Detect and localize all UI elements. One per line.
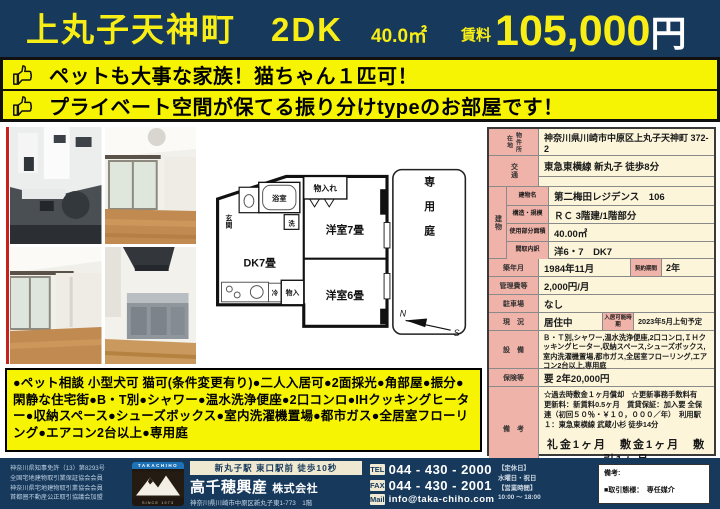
compass-north-label: N: [400, 309, 407, 319]
movein-value: 2023年5月上旬予定: [634, 313, 714, 330]
transaction-remark-box: 備考: ■取引態様： 専任媒介: [598, 464, 710, 504]
contact-row-tel: TEL 044 - 430 - 2000: [370, 462, 492, 477]
room7-label: 洋室7畳: [326, 223, 365, 236]
location-value: 神奈川県川崎市中原区上丸子天神町 372-2: [539, 129, 714, 155]
photo-grid: [10, 127, 196, 364]
red-accent-strip: [6, 127, 9, 364]
row-insurance: 保険等 要 2年20,000円: [489, 369, 714, 387]
catchcopy-line-2: プライベート空間が保てる振り分けtypeのお部屋です！: [49, 91, 564, 120]
built-label: 築年月: [489, 259, 539, 276]
compass-south-label: S: [454, 328, 460, 338]
open-value: 10:00 ～ 18:00: [498, 493, 560, 503]
row-building-name: 建物名 第二梅田レジデンス 106: [507, 187, 714, 205]
mountain-icon: [132, 469, 184, 500]
footer: 神奈川県知事免許（13）第8293号 全国宅地建物取引業保証協会会員 神奈川県宅…: [0, 458, 720, 509]
remark-box-label: 備考:: [604, 468, 704, 478]
building-label: 建物: [489, 187, 507, 258]
fax-label: FAX: [370, 480, 385, 491]
washer-label: 洗: [288, 218, 295, 227]
transaction-type: ■取引態様： 専任媒介: [604, 485, 704, 495]
insurance-label: 保険等: [489, 369, 539, 386]
photo-kitchen: [105, 247, 197, 364]
header: 上丸子天神町 2DK 40.0㎡ 賃料 105,000 円: [0, 0, 720, 57]
bath-label: 浴室: [272, 194, 287, 203]
status-value: 居住中: [539, 313, 602, 330]
garden-label: 専用庭: [423, 175, 435, 249]
structure-value: ＲＣ 3階建/1階部分: [549, 206, 714, 223]
floor-area-value: 40.0㎡: [371, 21, 427, 51]
contact-row-fax: FAX 044 - 430 - 2001: [370, 478, 492, 493]
access-empty-line: [539, 176, 714, 186]
access-value: 東急東横線 新丸子 徒歩8分: [539, 156, 714, 176]
row-mgmt: 管理費等 2,000円/月: [489, 277, 714, 295]
rent-label: 賃料: [461, 24, 491, 51]
closed-value: 水曜日・祝日: [498, 474, 560, 484]
thumbs-up-icon: [11, 63, 33, 87]
mgmt-value: 2,000円/月: [539, 277, 714, 294]
main-area: 専用庭 N S 物入れ: [0, 122, 720, 458]
floor-area-value: 40.00㎡: [549, 224, 714, 241]
logo-bottom-text: SINCE 1973: [132, 500, 184, 506]
photo-building-exterior: [10, 127, 102, 244]
contract-label: 契約期間: [630, 259, 662, 276]
equipment-value: Ｂ・Ｔ別,シャワー,温水洗浄便座,2口コンロ,ＩＨクッキングヒーター,収納スペー…: [539, 331, 714, 368]
built-value: 1984年11月: [539, 259, 630, 276]
dk-label: DK7畳: [244, 258, 277, 270]
room6-label: 洋室6畳: [326, 289, 365, 302]
fax-value: 044 - 430 - 2001: [389, 478, 492, 493]
floor-plan: 専用庭 N S 物入れ: [198, 125, 482, 367]
company-name: 高千穂興産 株式会社: [190, 476, 362, 497]
company-block: 新丸子駅 東口駅前 徒歩10秒 高千穂興産 株式会社 神奈川県川崎市中原区新丸子…: [190, 461, 362, 507]
row-building: 建物 建物名 第二梅田レジデンス 106 構造・規模 ＲＣ 3階建/1階部分 使…: [489, 187, 714, 259]
row-status: 現 況 居住中 入居可能時期 2023年5月上旬予定: [489, 313, 714, 331]
property-flyer: 上丸子天神町 2DK 40.0㎡ 賃料 105,000 円 ペットも大事な家族！…: [0, 0, 720, 509]
property-table: 物件所在地 神奈川県川崎市中原区上丸子天神町 372-2 交通 東急東横線 新丸…: [487, 127, 716, 456]
row-location: 物件所在地 神奈川県川崎市中原区上丸子天神町 372-2: [489, 129, 714, 156]
row-parking: 駐車場 なし: [489, 295, 714, 313]
catchcopy-row: プライベート空間が保てる振り分けtypeのお部屋です！: [3, 89, 717, 120]
catchcopy-row: ペットも大事な家族！猫ちゃん１匹可！: [3, 60, 717, 89]
remarks-line-2: 更新料：新賃料0.5ヶ月 賃貸保証：加入要 全保連（初回５０％・￥１０，０００／…: [544, 400, 709, 430]
open-label: 【営業時間】: [498, 484, 560, 494]
tel-value: 044 - 430 - 2000: [389, 462, 492, 477]
license-line: 神奈川県宅地建物取引業協会会員: [10, 484, 130, 494]
station-access: 新丸子駅 東口駅前 徒歩10秒: [190, 461, 362, 475]
closed-label: 【定休日】: [498, 464, 560, 474]
parking-value: なし: [539, 295, 714, 312]
company-suffix: 株式会社: [272, 483, 318, 495]
license-list: 神奈川県知事免許（13）第8293号 全国宅地建物取引業保証協会会員 神奈川県宅…: [6, 464, 130, 502]
contract-value: 2年: [662, 259, 714, 276]
insurance-value: 要 2年20,000円: [539, 369, 714, 386]
row-structure: 構造・規模 ＲＣ 3階建/1階部分: [507, 205, 714, 223]
mgmt-label: 管理費等: [489, 277, 539, 294]
thumbs-up-icon: [11, 94, 33, 118]
closet-top-label: 物入れ: [314, 183, 338, 193]
company-address: 神奈川県川崎市中原区新丸子東1-773 1階: [190, 498, 362, 507]
rent-unit: 円: [650, 17, 686, 51]
row-built: 築年月 1984年11月 契約期間 2年: [489, 259, 714, 277]
tel-label: TEL: [370, 464, 385, 475]
fridge-label: 冷: [272, 288, 279, 297]
parking-label: 駐車場: [489, 295, 539, 312]
building-name-label: 建物名: [507, 187, 549, 205]
access-label: 交通: [489, 156, 539, 186]
rent-value: 105,000: [495, 12, 650, 51]
license-line: 神奈川県知事免許（13）第8293号: [10, 464, 130, 474]
equipment-label: 設 備: [489, 331, 539, 368]
features-box: ●ペット相談 小型犬可 猫可(条件変更有り)●二人入居可●2面採光●角部屋●振分…: [5, 368, 482, 452]
remarks-line-1: ☆過去時敷金１ヶ月償却 ☆更新事務手数料有: [544, 390, 709, 400]
mail-value: info@taka-chiho.com: [389, 494, 495, 505]
movein-label: 入居可能時期: [602, 313, 634, 330]
business-hours: 【定休日】 水曜日・祝日 【営業時間】 10:00 ～ 18:00: [498, 464, 560, 502]
takachiho-logo: TAKACHIHO SINCE 1973: [132, 462, 184, 506]
mail-label: Mail: [370, 494, 385, 505]
floor-area-label: 使用部分面積: [507, 224, 549, 241]
layout-value: 洋6・7 DK7: [549, 242, 714, 259]
building-name-value: 第二梅田レジデンス 106: [549, 187, 714, 205]
contact-row-mail: Mail info@taka-chiho.com: [370, 494, 492, 505]
photo-room-window: [10, 247, 102, 364]
catchcopy-banner: ペットも大事な家族！猫ちゃん１匹可！ プライベート空間が保てる振り分けtypeの…: [0, 57, 720, 122]
row-equipment: 設 備 Ｂ・Ｔ別,シャワー,温水洗浄便座,2口コンロ,ＩＨクッキングヒーター,収…: [489, 331, 714, 369]
logo-top-text: TAKACHIHO: [132, 462, 184, 469]
status-label: 現 況: [489, 313, 539, 330]
catchcopy-line-1: ペットも大事な家族！猫ちゃん１匹可！: [49, 60, 418, 89]
layout-label: 間取内訳: [507, 242, 549, 259]
closet-bottom-label: 物入: [286, 288, 300, 297]
row-access: 交通 東急東横線 新丸子 徒歩8分: [489, 156, 714, 187]
location-label: 物件所在地: [489, 129, 539, 155]
structure-label: 構造・規模: [507, 206, 549, 223]
row-floor-area: 使用部分面積 40.00㎡: [507, 223, 714, 241]
license-line: 全国宅地建物取引業保証協会会員: [10, 474, 130, 484]
page-title: 上丸子天神町 2DK: [26, 3, 343, 51]
row-layout: 間取内訳 洋6・7 DK7: [507, 241, 714, 259]
photo-room-balcony: [105, 127, 197, 244]
license-line: 首都圏不動産公正取引協議会加盟: [10, 493, 130, 503]
contact-block: TEL 044 - 430 - 2000 FAX 044 - 430 - 200…: [370, 462, 492, 505]
